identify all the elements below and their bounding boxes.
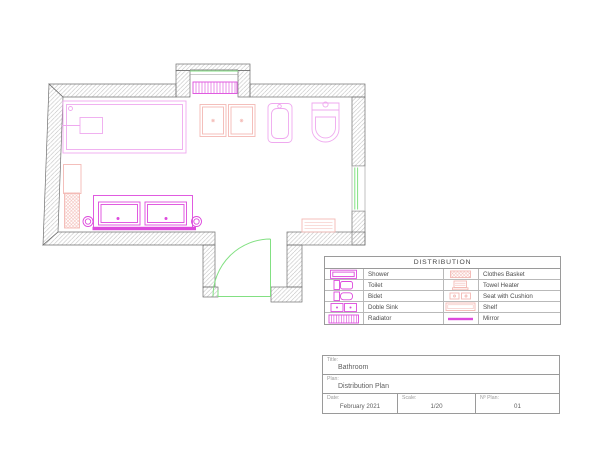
- bidet-icon: [325, 291, 364, 302]
- seat-with-cushion-1: [200, 105, 226, 137]
- door: [213, 239, 271, 297]
- legend-label-bidet: Bidet: [364, 291, 444, 302]
- title-block-meta-row: Date: February 2021 Scale: 1/20 Nº Plan:…: [323, 394, 559, 413]
- radiator: [193, 82, 237, 94]
- title-label: Title:: [327, 357, 338, 363]
- shower-icon: [325, 269, 364, 280]
- toilet-icon: [325, 280, 364, 291]
- legend-label-toilet: Toilet: [364, 280, 444, 291]
- plan-label: Plan:: [327, 376, 339, 382]
- plan-number-value: 01: [476, 403, 559, 410]
- legend-label-towel-heater: Towel Heater: [479, 280, 560, 291]
- window-right: [352, 166, 365, 211]
- date-cell: Date: February 2021: [323, 394, 398, 413]
- scale-value: 1/20: [398, 403, 475, 410]
- radiator-icon: [325, 313, 364, 324]
- mirror-icon: [444, 313, 479, 324]
- plan-number-cell: Nº Plan: 01: [476, 394, 559, 413]
- legend-label-radiator: Radiator: [364, 313, 444, 324]
- walls: [43, 64, 365, 302]
- towel-heater-icon: [444, 280, 479, 291]
- legend-label-clothes-basket: Clothes Basket: [479, 269, 560, 280]
- clothes-basket-icon: [444, 269, 479, 280]
- title-value: Bathroom: [338, 364, 368, 371]
- towel-heater: [302, 219, 335, 232]
- seat-with-cushion-2: [229, 105, 256, 137]
- seat-with-cushion-icon: [444, 291, 479, 302]
- sconce-left: [83, 217, 93, 227]
- plan-number-label: Nº Plan:: [480, 395, 499, 401]
- date-value: February 2021: [323, 403, 397, 410]
- legend-label-shelf: Shelf: [479, 302, 560, 313]
- drawing-canvas: DISTRIBUTION Shower Clothes Basket Toile…: [0, 0, 600, 460]
- scale-cell: Scale: 1/20: [398, 394, 476, 413]
- legend-label-double-sink: Doble Sink: [364, 302, 444, 313]
- sconce-right: [192, 217, 202, 227]
- legend-table: DISTRIBUTION Shower Clothes Basket Toile…: [324, 256, 561, 325]
- legend-label-mirror: Mirror: [479, 313, 560, 324]
- scale-label: Scale:: [402, 395, 416, 401]
- plan-value: Distribution Plan: [338, 383, 389, 390]
- double-sink: [94, 196, 193, 228]
- legend-label-shower: Shower: [364, 269, 444, 280]
- shower: [62, 101, 186, 153]
- title-block-title-row: Title: Bathroom: [323, 356, 559, 375]
- clothes-basket: [65, 193, 80, 228]
- double-sink-icon: [325, 302, 364, 313]
- bidet: [268, 104, 292, 143]
- date-label: Date:: [327, 395, 339, 401]
- shelf-icon: [444, 302, 479, 313]
- legend-title: DISTRIBUTION: [325, 257, 560, 269]
- shelf: [64, 165, 82, 194]
- legend-label-seat-with-cushion: Seat with Cushion: [479, 291, 560, 302]
- title-block: Title: Bathroom Plan: Distribution Plan …: [322, 355, 560, 414]
- mirror: [93, 227, 197, 230]
- toilet: [312, 102, 339, 142]
- title-block-plan-row: Plan: Distribution Plan: [323, 375, 559, 394]
